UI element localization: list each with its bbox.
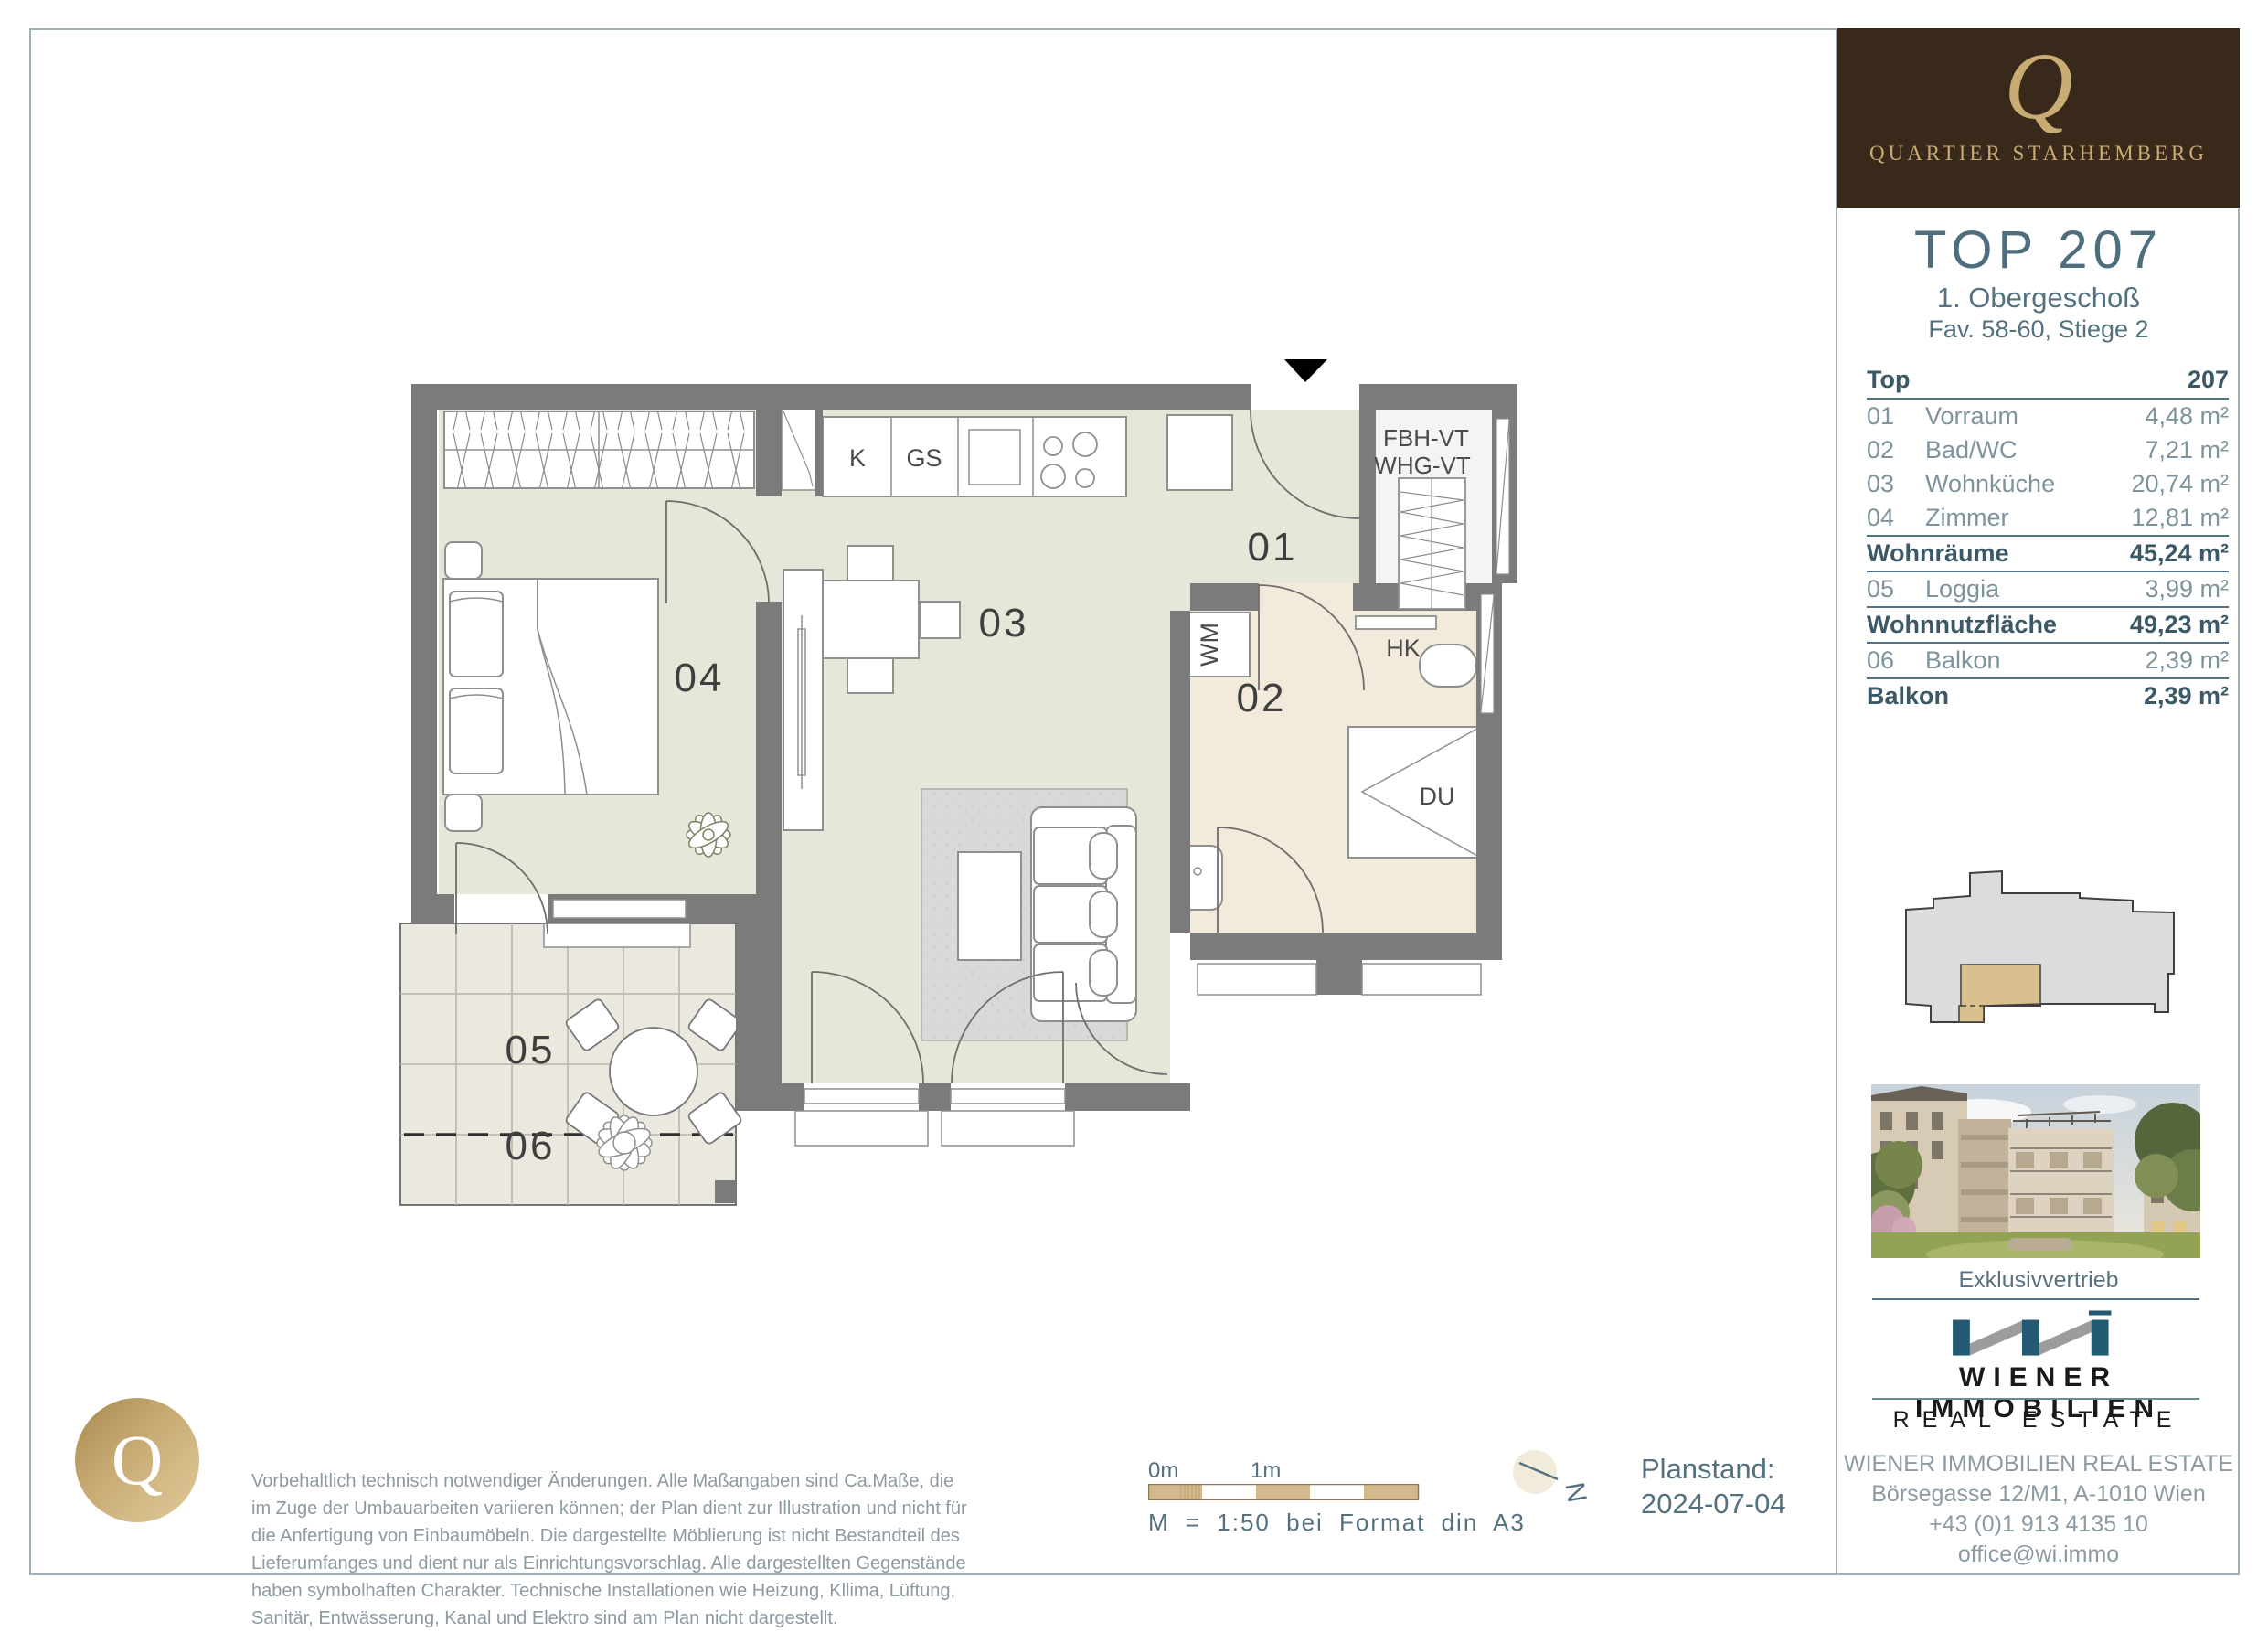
brand-wordmark: QUARTIER STARHEMBERG [1837,142,2240,165]
area-table-rows: 01Vorraum4,48 m²02Bad/WC7,21 m²03Wohnküc… [1867,400,2229,713]
entry-cabinet [1167,415,1232,490]
coffee-table [958,852,1021,960]
unit-subtitle: Fav. 58-60, Stiege 2 [1837,315,2240,344]
row-number: 05 [1867,575,1925,603]
table-row: 06Balkon2,39 m² [1867,644,2229,677]
divider-line [1872,1298,2199,1300]
radiator [1356,616,1436,629]
area-table: Top 207 01Vorraum4,48 m²02Bad/WC7,21 m²0… [1867,364,2229,713]
table-row: Wohnnutzfläche49,23 m² [1867,606,2229,644]
row-label: Wohnräume [1867,539,2130,568]
row-number: 04 [1867,504,1925,532]
wardrobe [444,411,754,488]
contact-phone: +43 (0)1 913 4135 10 [1837,1509,2240,1540]
row-value: 45,24 m² [2130,539,2229,568]
row-label: Wohnnutzfläche [1867,611,2130,639]
north-arrow-icon: N [1499,1443,1618,1525]
row-number: 03 [1867,470,1925,498]
contact-address: Börsegasse 12/M1, A-1010 Wien [1837,1479,2240,1509]
room-label-04: 04 [675,656,725,700]
table-row: 04Zimmer12,81 m² [1867,501,2229,535]
planstand: Planstand: 2024-07-04 [1641,1452,1786,1521]
entrance-arrow-icon [1284,359,1327,382]
shower [1348,727,1479,858]
row-number: 01 [1867,402,1925,431]
row-value: 2,39 m² [2144,682,2229,710]
label-washing-machine: WM [1196,623,1223,667]
table-row: Balkon2,39 m² [1867,677,2229,713]
row-value: 7,21 m² [2145,436,2229,464]
building-photo [1871,1084,2200,1258]
row-label: Balkon [1925,646,2145,675]
row-label: Bad/WC [1925,436,2145,464]
table-row: 01Vorraum4,48 m² [1867,400,2229,433]
area-table-header: Top 207 [1867,364,2229,400]
kitchen-counter [823,417,1126,496]
brand-q-icon: Q [1837,39,2240,134]
planstand-label: Planstand: [1641,1452,1786,1487]
row-number: 06 [1867,646,1925,675]
room-label-01: 01 [1248,525,1298,570]
label-kitchen-gs: GS [906,444,942,472]
divider-line-2 [1872,1398,2199,1400]
project-brand: Q QUARTIER STARHEMBERG [1837,28,2240,208]
site-plan [1897,869,2180,1029]
unit-floor: 1. Obergeschoß [1837,282,2240,315]
room-label-06: 06 [506,1124,556,1168]
toilet [1420,645,1476,687]
area-table-header-value: 207 [2188,366,2229,394]
table-row: 02Bad/WC7,21 m² [1867,433,2229,467]
row-value: 3,99 m² [2145,575,2229,603]
row-label: Wohnküche [1925,470,2131,498]
real-estate-label: REAL ESTATE [1837,1407,2240,1434]
site-plan-unit-highlight [1959,965,2040,1022]
scale-text: M = 1:50 bei Format din A3 [1148,1509,1526,1537]
label-radiator: HK [1386,635,1421,662]
table-row: 03Wohnküche20,74 m² [1867,467,2229,501]
row-label: Balkon [1867,682,2144,710]
label-kitchen-k: K [849,444,866,472]
room-label-05: 05 [506,1028,556,1072]
table-row: 05Loggia3,99 m² [1867,572,2229,606]
planstand-date: 2024-07-04 [1641,1487,1786,1521]
row-value: 49,23 m² [2130,611,2229,639]
label-shower: DU [1420,783,1455,810]
row-value: 20,74 m² [2131,470,2229,498]
table-row: Wohnräume45,24 m² [1867,535,2229,572]
sofa [1031,807,1136,1021]
contact-company: WIENER IMMOBILIEN REAL ESTATE [1837,1449,2240,1479]
label-shaft-2: WHG-VT [1374,452,1471,479]
row-label: Loggia [1925,575,2145,603]
row-value: 12,81 m² [2131,504,2229,532]
label-shaft-1: FBH-VT [1383,424,1469,452]
unit-title: TOP 207 [1837,219,2240,281]
technical-shaft [1399,478,1465,609]
room-label-03: 03 [979,601,1029,645]
north-letter: N [1559,1480,1592,1505]
distribution-heading: Exklusivvertrieb [1837,1267,2240,1294]
contact-email: office@wi.immo [1837,1540,2240,1570]
row-label: Zimmer [1925,504,2131,532]
scale-one-label: 1m [1251,1458,1281,1484]
sideboard-tv [783,570,823,830]
quartier-q-badge-icon: Q [75,1398,199,1522]
badge-q-glyph: Q [112,1420,163,1499]
wiener-immobilien-logo-icon [1920,1309,2157,1357]
kitchen-shaft [782,408,815,490]
area-table-header-label: Top [1867,366,1910,394]
row-value: 2,39 m² [2145,646,2229,675]
row-number: 02 [1867,436,1925,464]
floor-plan: 01 02 03 04 05 06 K GS WM HK DU FBH-VT W… [393,355,1527,1232]
scale-zero-label: 0m [1148,1458,1178,1484]
disclaimer-text: Vorbehaltlich technisch notwendiger Ände… [251,1467,974,1632]
row-value: 4,48 m² [2145,402,2229,431]
row-label: Vorraum [1925,402,2145,431]
room-label-02: 02 [1237,676,1287,720]
scale-bar [1148,1484,1420,1500]
contact-block: WIENER IMMOBILIEN REAL ESTATE Börsegasse… [1837,1449,2240,1570]
bed [443,542,658,831]
